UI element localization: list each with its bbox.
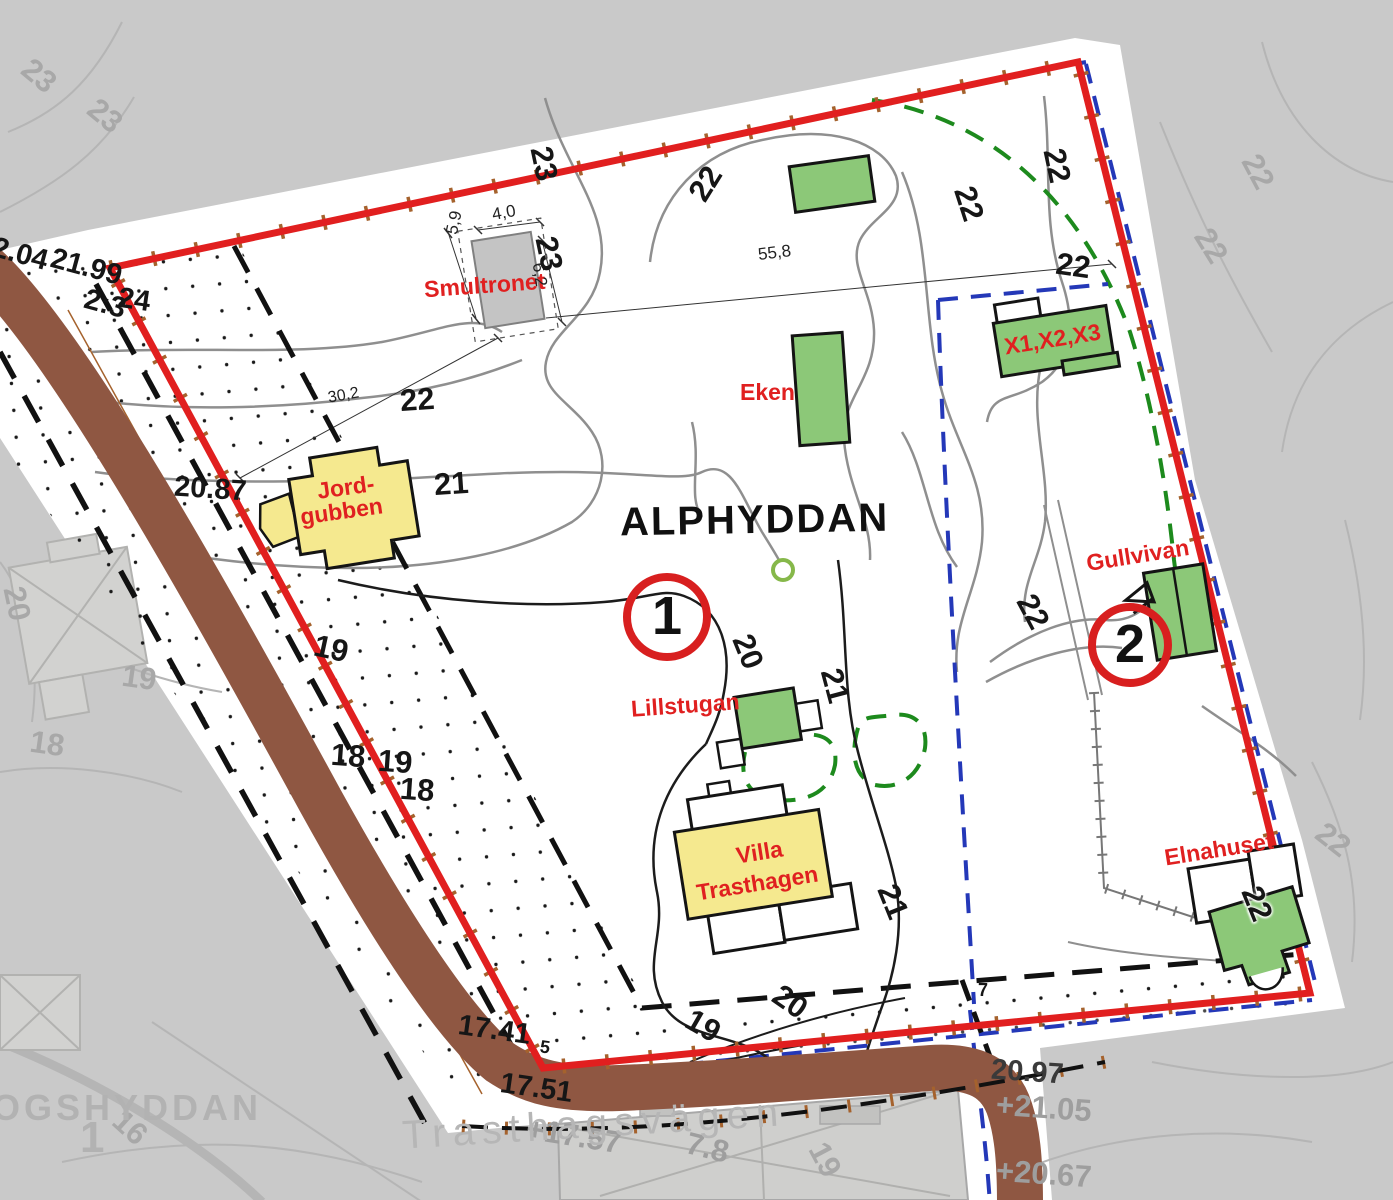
spot-height-gray: +21.05 [995, 1089, 1093, 1127]
contour-label: 22 [1054, 248, 1092, 283]
spot-height: 20.97 [990, 1056, 1064, 1090]
dimension-label: 55,8 [757, 242, 792, 263]
contour-label: 18 [330, 739, 367, 772]
contour-label: 22 [1038, 145, 1075, 185]
spot-height: 24 [116, 284, 152, 317]
contour-label: 22 [399, 383, 436, 416]
dimension-label: 5,9 [443, 209, 465, 236]
contour-label-outside: 19 [120, 660, 158, 695]
building-eken [792, 332, 850, 445]
dimension-label: 4,0 [491, 202, 517, 223]
neighbor-property-number: 1 [80, 1116, 104, 1160]
contour-label: 23 [530, 233, 567, 273]
tree-symbol [773, 560, 793, 580]
spot-height: 20.87 [173, 473, 247, 507]
building-north-green [789, 156, 875, 213]
neighbor-property-label: OGSHYDDAN [0, 1090, 262, 1126]
spot-height-gray: +20.67 [995, 1155, 1093, 1193]
contour-label-outside: 18 [28, 726, 66, 761]
contour-label: 18 [399, 773, 436, 806]
contour-label: 21 [433, 467, 470, 500]
map-title: ALPHYDDAN [620, 498, 890, 543]
spot-height: 7 [978, 981, 988, 999]
neighbor-building-southwest [0, 975, 80, 1050]
contour-label-outside: 20 [0, 583, 36, 623]
area-marker-2: 2 [1115, 617, 1145, 671]
building-label-eken: Eken [740, 381, 795, 404]
contour-label: 23 [525, 143, 562, 183]
area-marker-1: 1 [652, 589, 682, 643]
site-plan-map: ALPHYDDAN 1 2 Smultronet Eken X1,X2,X3 J… [0, 0, 1393, 1200]
contour-label: 19 [311, 630, 351, 667]
